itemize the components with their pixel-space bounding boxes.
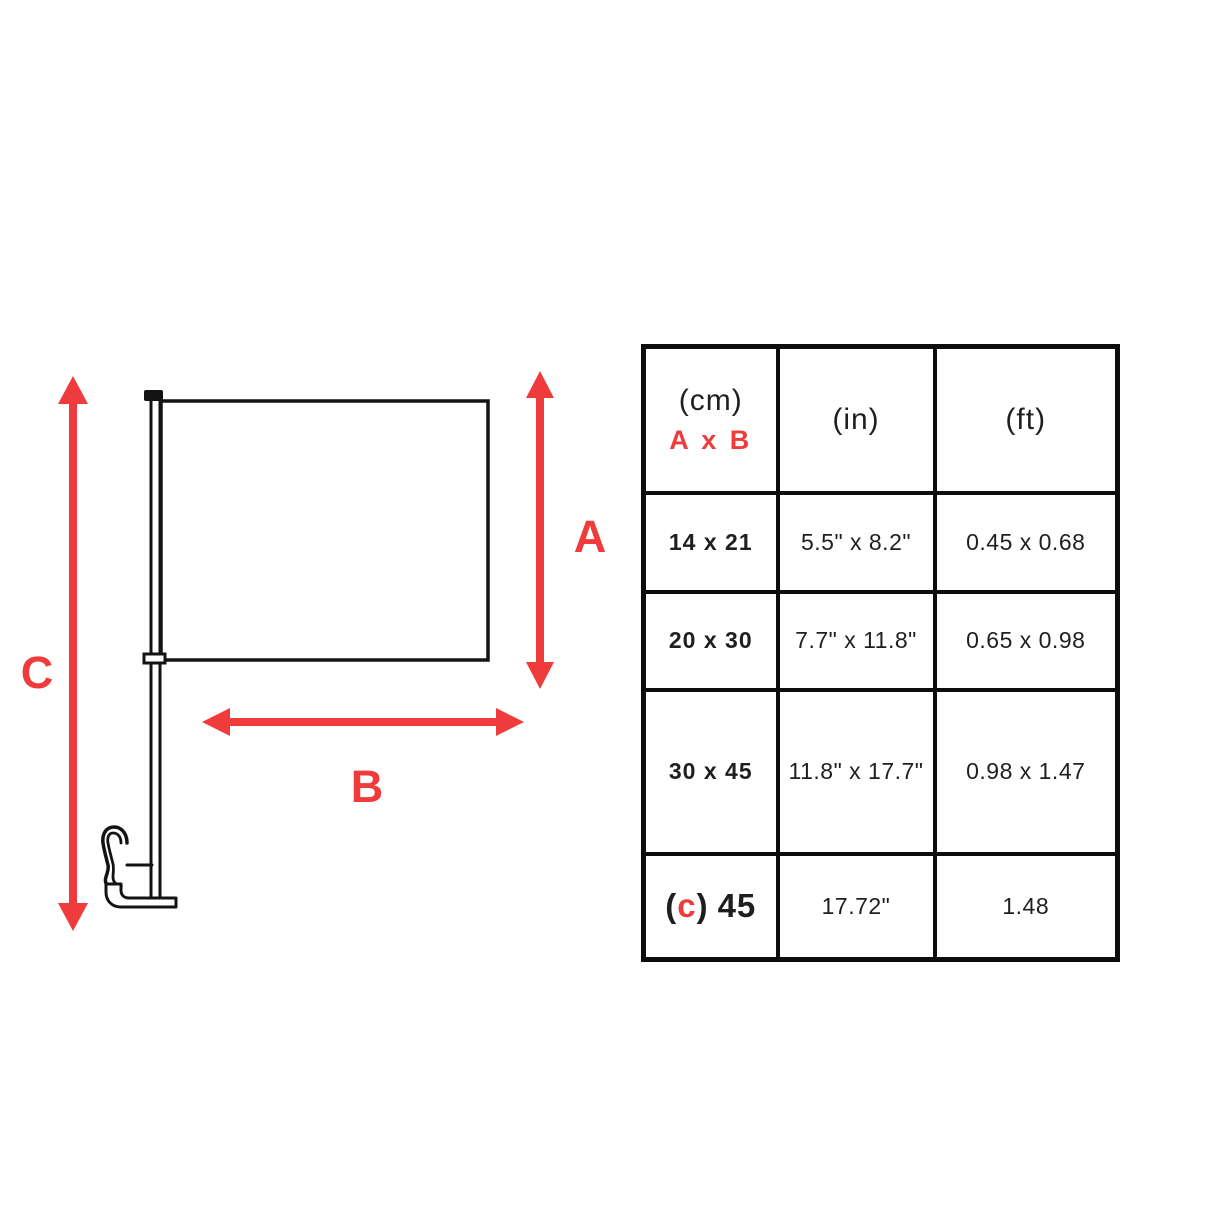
cell-ft: 1.48 xyxy=(935,854,1118,960)
cell-in: 5.5" x 8.2" xyxy=(778,493,935,592)
cell-ft: 0.98 x 1.47 xyxy=(935,690,1118,854)
size-conversion-table: (cm) A x B (in) (ft) 14 x 21 5.5" x 8.2"… xyxy=(641,344,1120,962)
cell-in: 7.7" x 11.8" xyxy=(778,592,935,690)
cell-cm: 20 x 30 xyxy=(644,592,778,690)
in-value: 5.5" x 8.2" xyxy=(801,529,911,555)
c-dimension-arrow xyxy=(58,376,88,931)
flag-outline xyxy=(161,401,488,660)
axb-label: A x B xyxy=(646,425,776,456)
table-row: (c)45 17.72" 1.48 xyxy=(644,854,1118,960)
clip-base xyxy=(106,884,176,907)
table-row: 14 x 21 5.5" x 8.2" 0.45 x 0.68 xyxy=(644,493,1118,592)
a-dimension-arrow xyxy=(526,371,554,689)
cell-cm-c45: (c)45 xyxy=(644,854,778,960)
size-table: (cm) A x B (in) (ft) 14 x 21 5.5" x 8.2"… xyxy=(641,344,1120,962)
c45-value: (c)45 xyxy=(665,887,756,924)
b-label: B xyxy=(351,761,384,812)
flag-pole xyxy=(151,396,160,900)
ft-value: 0.65 x 0.98 xyxy=(966,627,1085,653)
header-cell-in: (in) xyxy=(778,347,935,493)
header-cell-cm: (cm) A x B xyxy=(644,347,778,493)
in-value: 17.72" xyxy=(822,893,891,919)
in-unit-label: (in) xyxy=(780,403,933,437)
table-row: 20 x 30 7.7" x 11.8" 0.65 x 0.98 xyxy=(644,592,1118,690)
c-label: C xyxy=(21,647,54,698)
cell-ft: 0.65 x 0.98 xyxy=(935,592,1118,690)
cell-cm: 14 x 21 xyxy=(644,493,778,592)
cell-cm: 30 x 45 xyxy=(644,690,778,854)
header-cell-ft: (ft) xyxy=(935,347,1118,493)
c-red-letter: c xyxy=(677,887,696,924)
table-header-row: (cm) A x B (in) (ft) xyxy=(644,347,1118,493)
window-clip-icon xyxy=(103,827,152,889)
b-dimension-arrow xyxy=(202,708,524,736)
cell-ft: 0.45 x 0.68 xyxy=(935,493,1118,592)
car-flag-size-chart: C A B xyxy=(0,0,1214,1214)
table-row: 30 x 45 11.8" x 17.7" 0.98 x 1.47 xyxy=(644,690,1118,854)
ft-value: 1.48 xyxy=(1002,893,1049,919)
in-value: 11.8" x 17.7" xyxy=(789,758,924,784)
ft-value: 0.98 x 1.47 xyxy=(966,758,1085,784)
cm-value: 30 x 45 xyxy=(669,758,753,784)
ft-value: 0.45 x 0.68 xyxy=(966,529,1085,555)
pole-collar xyxy=(144,654,165,663)
ft-unit-label: (ft) xyxy=(937,403,1116,437)
cm-value: 20 x 30 xyxy=(669,627,753,653)
cm-value: 14 x 21 xyxy=(669,529,753,555)
in-value: 7.7" x 11.8" xyxy=(795,627,917,653)
cell-in: 17.72" xyxy=(778,854,935,960)
cm-unit-label: (cm) xyxy=(646,384,776,418)
cell-in: 11.8" x 17.7" xyxy=(778,690,935,854)
a-label: A xyxy=(574,511,607,562)
